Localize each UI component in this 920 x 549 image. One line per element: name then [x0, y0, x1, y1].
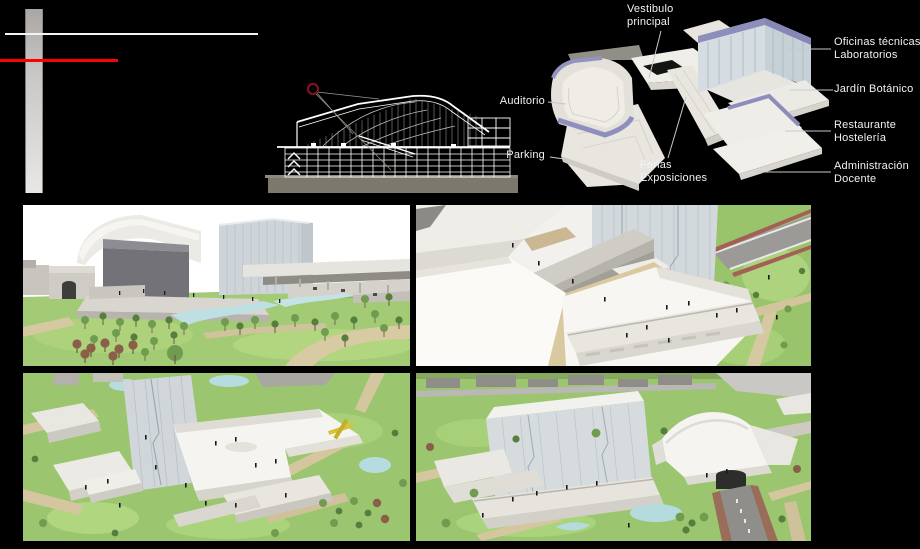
label-line: Ferias — [640, 159, 707, 172]
decor-vertical-bar — [25, 9, 43, 193]
render-aerial-plaza — [416, 205, 811, 366]
axon-auditorio-volume — [551, 45, 644, 137]
label-line: Restaurante — [834, 119, 896, 132]
label-auditorio: Auditorio — [500, 95, 545, 108]
section-parking-levels — [285, 148, 510, 177]
label-line: Auditorio — [500, 95, 545, 108]
label-line: Oficinas técnicas — [834, 36, 920, 49]
render-perspective-overview — [23, 205, 410, 366]
label-line: Administración — [834, 160, 909, 173]
label-line: Vestibulo — [627, 3, 673, 16]
decor-red-accent-line — [0, 59, 118, 62]
page: Vestibulo principal Auditorio Parking Fe… — [0, 0, 920, 549]
label-line: Docente — [834, 173, 909, 186]
label-oficinas-laboratorios: Oficinas técnicas Laboratorios — [834, 36, 920, 62]
section-plinth — [268, 177, 518, 193]
label-line: Parking — [506, 149, 545, 162]
label-line: Exposiciones — [640, 172, 707, 185]
label-administracion-docente: Administración Docente — [834, 160, 909, 186]
decor-horizontal-line — [5, 33, 258, 35]
label-ferias-exposiciones: Ferias Exposiciones — [640, 159, 707, 185]
render-aerial-auditorium — [416, 373, 811, 541]
label-restaurante-hosteleria: Restaurante Hostelería — [834, 119, 896, 145]
label-line: Laboratorios — [834, 49, 920, 62]
label-jardin-botanico: Jardín Botánico — [834, 83, 913, 96]
section-red-marker — [308, 84, 391, 170]
label-vestibulo-principal: Vestibulo principal — [627, 3, 673, 29]
label-line: principal — [627, 16, 673, 29]
render-aerial-roofs — [23, 373, 410, 541]
label-parking: Parking — [506, 149, 545, 162]
label-line: Hostelería — [834, 132, 896, 145]
building-section-drawing — [263, 58, 520, 195]
label-line: Jardín Botánico — [834, 83, 913, 96]
